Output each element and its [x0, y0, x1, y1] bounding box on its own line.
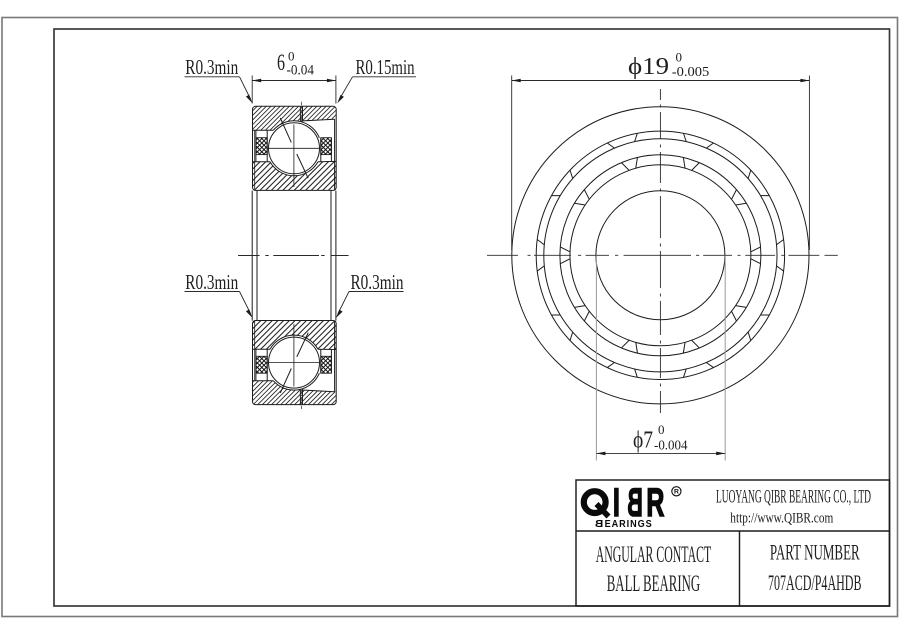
svg-text:6: 6	[277, 50, 285, 75]
svg-text:0: 0	[676, 50, 683, 65]
svg-text:ANGULAR CONTACT: ANGULAR CONTACT	[596, 542, 712, 567]
svg-text:LUOYANG QIBR BEARING CO., LTD: LUOYANG QIBR BEARING CO., LTD	[716, 487, 871, 508]
svg-text:707ACD/P4AHDB: 707ACD/P4AHDB	[768, 570, 862, 595]
svg-text:R0.15min: R0.15min	[356, 55, 415, 79]
svg-text:PART NUMBER: PART NUMBER	[770, 540, 860, 565]
svg-text:http://www.QIBR.com: http://www.QIBR.com	[730, 510, 833, 526]
svg-text:0: 0	[658, 422, 665, 437]
svg-text:-0.04: -0.04	[287, 63, 315, 79]
svg-text:ϕ7: ϕ7	[633, 428, 653, 454]
svg-text:ϕ19: ϕ19	[628, 54, 669, 80]
svg-text:R: R	[674, 489, 679, 496]
svg-text:B: B	[595, 519, 603, 530]
svg-text:BALL BEARING: BALL BEARING	[607, 571, 701, 596]
svg-text:EARINGS: EARINGS	[605, 519, 653, 530]
svg-text:R0.3min: R0.3min	[351, 270, 404, 294]
svg-text:-0.005: -0.005	[672, 65, 710, 80]
svg-text:0: 0	[288, 49, 295, 64]
svg-text:R0.3min: R0.3min	[185, 270, 238, 294]
svg-text:-0.004: -0.004	[654, 439, 688, 454]
svg-text:R0.3min: R0.3min	[185, 55, 238, 79]
